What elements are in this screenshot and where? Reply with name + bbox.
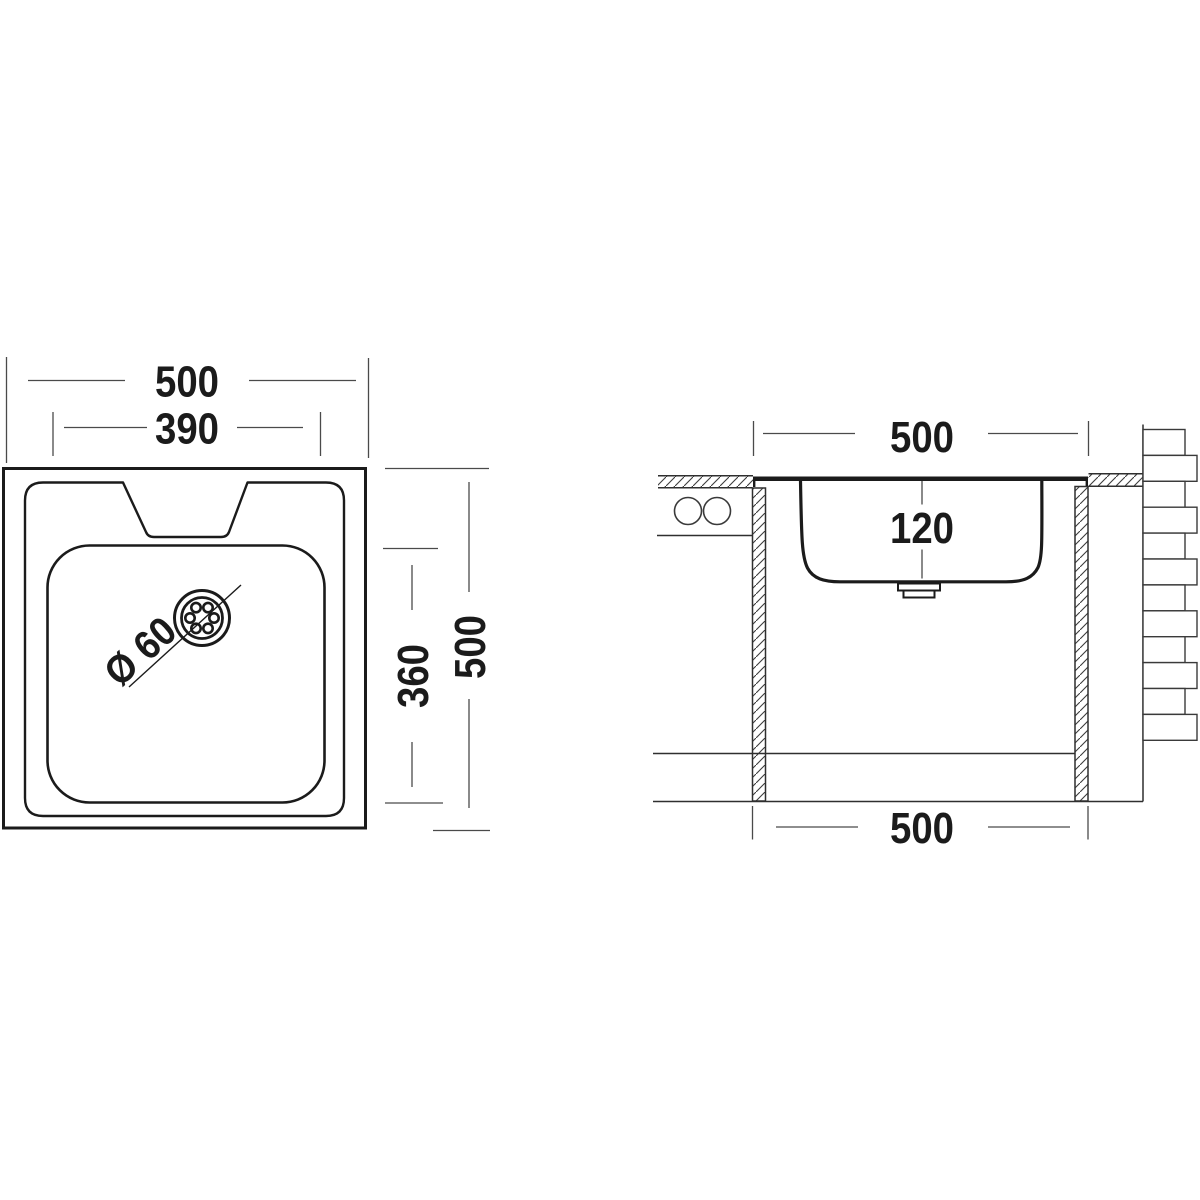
drain-diameter-label: Ø 60	[96, 609, 185, 695]
front-detail-circle	[675, 498, 702, 525]
dim-label-section-bowl-depth: 120	[890, 504, 954, 553]
brick-row-9	[1143, 637, 1185, 663]
sink-rim	[25, 483, 344, 817]
sink-section: 120	[753, 477, 1088, 598]
drain-hole	[185, 613, 194, 622]
front-detail-circle	[704, 498, 731, 525]
brick-row-12	[1143, 714, 1197, 740]
countertop-left	[658, 476, 753, 488]
brick-row-1	[1143, 430, 1185, 456]
countertop-right	[1089, 474, 1144, 487]
dim-top-view-bowl-depth: 360	[383, 549, 443, 804]
brick-row-7	[1143, 585, 1185, 611]
brick-row-6	[1143, 559, 1197, 585]
drain-fitting	[898, 584, 940, 598]
drain-hole	[203, 603, 212, 612]
sink-bowl-outline	[48, 546, 325, 803]
drain-hole	[191, 603, 200, 612]
dim-label-section-rim-width: 500	[890, 413, 954, 462]
brick-row-11	[1143, 689, 1185, 715]
brick-wall	[1143, 425, 1197, 802]
drain-hole	[203, 624, 212, 633]
brick-row-5	[1143, 533, 1185, 559]
brick-row-2	[1143, 455, 1197, 481]
sink-outer-edge	[4, 469, 366, 829]
drain-hole	[209, 613, 218, 622]
dim-label-top-view-overall-depth: 500	[446, 615, 495, 679]
cabinet-front-detail	[657, 498, 753, 536]
dim-label-top-view-bowl-width: 390	[155, 405, 219, 454]
dim-label-top-view-overall-width: 500	[155, 358, 219, 407]
drain-inner-ring	[182, 598, 223, 639]
section-view: 120 500 500	[653, 413, 1197, 853]
brick-row-8	[1143, 611, 1197, 637]
cabinet-side-right	[1075, 487, 1088, 802]
technical-drawing: Ø 60 500 390 360	[0, 0, 1200, 1200]
brick-row-3	[1143, 481, 1185, 507]
sink-drawing-canvas: Ø 60 500 390 360	[0, 0, 1200, 1200]
dim-section-base-width: 500	[753, 804, 1089, 853]
dim-top-view-bowl-width: 390	[53, 405, 321, 457]
drain-symbol: Ø 60	[96, 585, 241, 695]
dim-label-section-base-width: 500	[890, 804, 954, 853]
top-view: Ø 60 500 390 360	[4, 357, 496, 831]
brick-row-10	[1143, 663, 1197, 689]
dim-label-top-view-bowl-depth: 360	[389, 644, 438, 708]
brick-row-4	[1143, 507, 1197, 533]
dim-section-rim-width: 500	[754, 413, 1089, 462]
